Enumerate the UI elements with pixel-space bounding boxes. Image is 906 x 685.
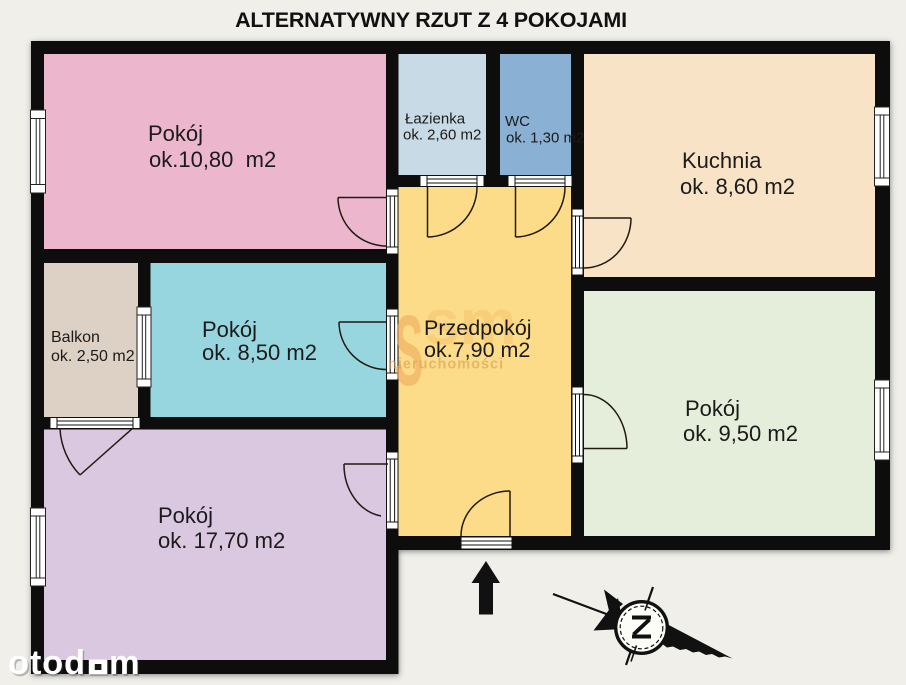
svg-text:Kuchnia: Kuchnia	[682, 148, 762, 173]
svg-text:ok. 2,60 m2: ok. 2,60 m2	[403, 127, 481, 144]
svg-text:ok. 2,50 m2: ok. 2,50 m2	[51, 348, 135, 365]
svg-text:m: m	[109, 644, 140, 682]
svg-text:Pokój: Pokój	[158, 503, 213, 528]
svg-text:Pokój: Pokój	[202, 317, 257, 342]
svg-text:Balkon: Balkon	[51, 329, 100, 346]
svg-text:ok. 1,30 m2: ok. 1,30 m2	[506, 130, 584, 147]
svg-text:ok.10,80 m2: ok.10,80 m2	[149, 147, 276, 172]
svg-text:Pokój: Pokój	[148, 121, 203, 146]
svg-text:WC: WC	[505, 113, 530, 130]
svg-text:Łazienka: Łazienka	[405, 111, 466, 128]
svg-text:ok. 8,50 m2: ok. 8,50 m2	[202, 340, 317, 365]
svg-text:ok. 17,70 m2: ok. 17,70 m2	[158, 528, 285, 553]
svg-text:S: S	[394, 296, 423, 407]
svg-text:ALTERNATYWNY RZUT Z 4 POKOJAMI: ALTERNATYWNY RZUT Z 4 POKOJAMI	[235, 8, 627, 32]
svg-text:Pokój: Pokój	[685, 396, 740, 421]
svg-text:Przedpokój: Przedpokój	[424, 316, 532, 340]
svg-text:ok.7,90 m2: ok.7,90 m2	[424, 338, 530, 362]
svg-text:ok. 9,50 m2: ok. 9,50 m2	[683, 421, 798, 446]
svg-text:otod: otod	[8, 644, 86, 682]
svg-text:ok. 8,60 m2: ok. 8,60 m2	[680, 174, 795, 199]
